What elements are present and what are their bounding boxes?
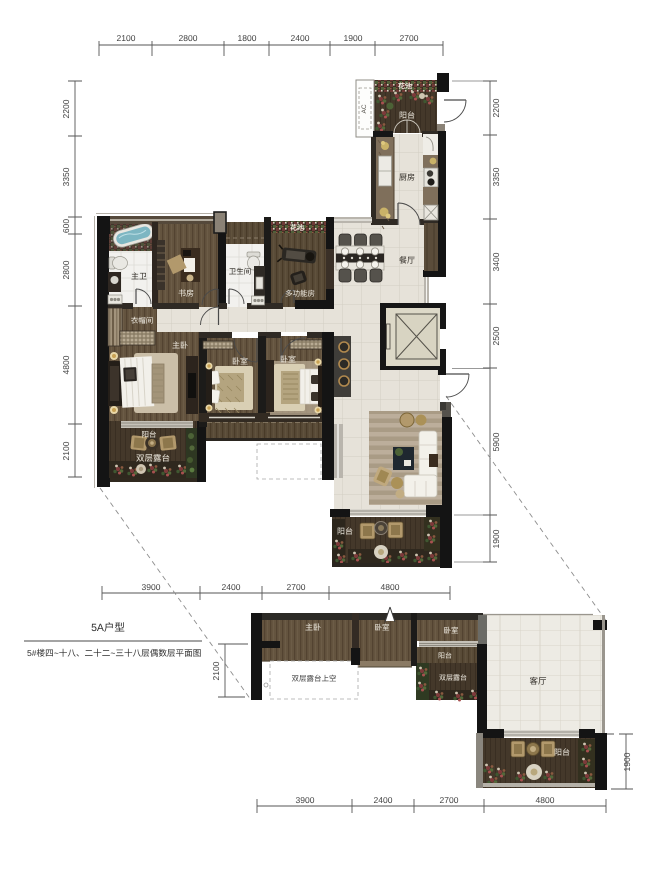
svg-text:2800: 2800 [61, 260, 71, 279]
svg-text:3900: 3900 [296, 795, 315, 805]
svg-text:2100: 2100 [61, 441, 71, 460]
svg-text:主卧: 主卧 [305, 623, 321, 632]
svg-text:厨房: 厨房 [399, 173, 415, 182]
svg-text:阳台: 阳台 [438, 652, 452, 660]
svg-text:多功能房: 多功能房 [285, 289, 315, 298]
svg-text:5900: 5900 [491, 432, 501, 451]
svg-text:4800: 4800 [381, 582, 400, 592]
svg-text:阳台: 阳台 [399, 111, 415, 120]
svg-text:2100: 2100 [117, 33, 136, 43]
svg-text:阳台: 阳台 [142, 430, 157, 439]
svg-text:2400: 2400 [374, 795, 393, 805]
svg-text:卧室: 卧室 [375, 623, 390, 632]
svg-text:3400: 3400 [491, 252, 501, 271]
svg-text:餐厅: 餐厅 [399, 256, 415, 265]
svg-text:书房: 书房 [178, 289, 194, 298]
svg-text:3350: 3350 [61, 167, 71, 186]
svg-text:花池: 花池 [398, 82, 412, 91]
svg-text:2200: 2200 [61, 99, 71, 118]
svg-text:主卫: 主卫 [131, 272, 147, 281]
svg-text:1900: 1900 [491, 529, 501, 548]
svg-text:花池: 花池 [290, 223, 304, 232]
svg-text:5A户型: 5A户型 [91, 622, 125, 634]
svg-text:双层露台上空: 双层露台上空 [292, 674, 337, 683]
svg-text:4800: 4800 [536, 795, 555, 805]
svg-text:2800: 2800 [179, 33, 198, 43]
svg-text:2200: 2200 [491, 98, 501, 117]
svg-text:3350: 3350 [491, 167, 501, 186]
svg-text:AC: AC [361, 104, 368, 113]
svg-text:2700: 2700 [287, 582, 306, 592]
svg-text:双层露台: 双层露台 [136, 453, 170, 463]
svg-text:1900: 1900 [344, 33, 363, 43]
svg-text:2500: 2500 [491, 326, 501, 345]
svg-text:2100: 2100 [211, 661, 221, 680]
svg-text:2700: 2700 [440, 795, 459, 805]
svg-text:卧室: 卧室 [444, 626, 459, 635]
svg-text:卫生间: 卫生间 [229, 267, 252, 276]
svg-text:2400: 2400 [291, 33, 310, 43]
svg-text:2700: 2700 [400, 33, 419, 43]
svg-text:5#楼四~十八、二十二~三十八层偶数层平面图: 5#楼四~十八、二十二~三十八层偶数层平面图 [27, 648, 201, 658]
svg-text:阳台: 阳台 [554, 748, 570, 757]
svg-text:4800: 4800 [61, 355, 71, 374]
svg-text:卧室: 卧室 [280, 355, 296, 364]
svg-text:2400: 2400 [222, 582, 241, 592]
svg-text:600: 600 [61, 219, 71, 233]
svg-text:阳台: 阳台 [337, 527, 353, 536]
svg-text:1800: 1800 [238, 33, 257, 43]
svg-text:卧室: 卧室 [232, 357, 248, 366]
svg-text:3900: 3900 [142, 582, 161, 592]
svg-text:双层露台: 双层露台 [439, 674, 467, 682]
svg-text:衣帽间: 衣帽间 [131, 316, 154, 325]
svg-text:客厅: 客厅 [529, 676, 547, 686]
svg-text:主卧: 主卧 [172, 341, 188, 350]
svg-text:1900: 1900 [622, 752, 632, 771]
